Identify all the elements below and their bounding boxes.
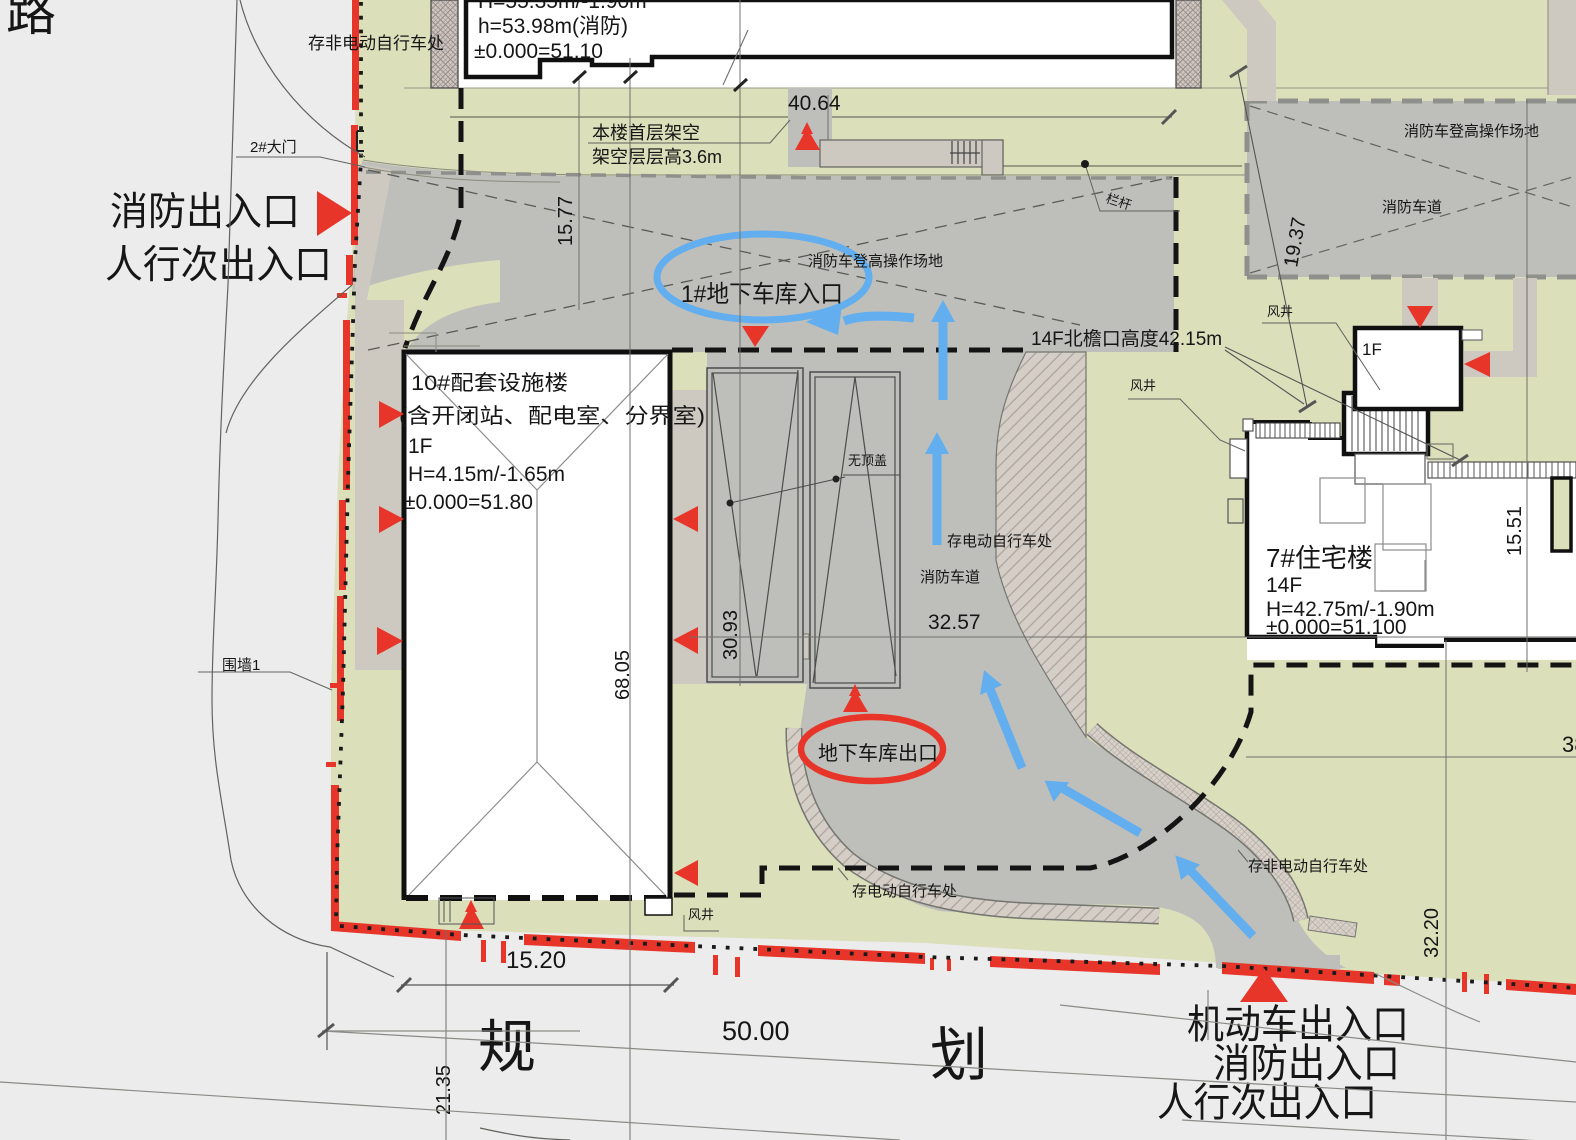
svg-text:消防出入口: 消防出入口 <box>1213 1042 1400 1086</box>
svg-text:消防车道: 消防车道 <box>1382 199 1442 216</box>
svg-text:架空层层高3.6m: 架空层层高3.6m <box>592 147 722 167</box>
svg-text:路: 路 <box>6 0 56 41</box>
svg-text:32.20: 32.20 <box>1421 908 1443 958</box>
svg-text:消防车登高操作场地: 消防车登高操作场地 <box>808 253 943 270</box>
svg-text:40.64: 40.64 <box>788 92 841 115</box>
svg-text:±0.000=51.10: ±0.000=51.10 <box>474 40 603 63</box>
svg-text:15.51: 15.51 <box>1504 506 1526 556</box>
svg-text:人行次出入口: 人行次出入口 <box>1157 1081 1377 1125</box>
svg-text:消防出入口: 消防出入口 <box>110 191 300 234</box>
svg-text:人行次出入口: 人行次出入口 <box>105 244 332 287</box>
svg-text:14F: 14F <box>1266 574 1302 597</box>
svg-text:规: 规 <box>478 1015 536 1080</box>
svg-text:h=53.98m(消防): h=53.98m(消防) <box>478 15 628 38</box>
svg-text:(含开闭站、配电室、分界室): (含开闭站、配电室、分界室) <box>399 405 705 428</box>
svg-text:7#住宅楼: 7#住宅楼 <box>1266 543 1373 573</box>
svg-text:1F: 1F <box>1362 340 1382 359</box>
svg-text:50.00: 50.00 <box>722 1016 790 1046</box>
svg-text:围墙1: 围墙1 <box>222 657 260 674</box>
svg-text:存电动自行车处: 存电动自行车处 <box>852 883 957 900</box>
svg-text:划: 划 <box>930 1023 988 1088</box>
svg-text:本楼首层架空: 本楼首层架空 <box>592 123 700 143</box>
svg-text:1F: 1F <box>408 435 433 458</box>
svg-text:38: 38 <box>1562 732 1576 757</box>
svg-text:±0.000=51.80: ±0.000=51.80 <box>404 491 533 514</box>
svg-text:15.20: 15.20 <box>506 947 566 974</box>
svg-text:30.93: 30.93 <box>720 610 742 660</box>
svg-text:风井: 风井 <box>688 907 714 922</box>
svg-text:15.77: 15.77 <box>555 196 577 246</box>
svg-text:1#地下车库入口: 1#地下车库入口 <box>681 281 843 308</box>
svg-text:风井: 风井 <box>1130 378 1156 393</box>
svg-text:地下车库出口: 地下车库出口 <box>818 742 938 765</box>
svg-text:H=4.15m/-1.65m: H=4.15m/-1.65m <box>408 463 565 486</box>
svg-text:32.57: 32.57 <box>928 611 981 634</box>
svg-text:21.35: 21.35 <box>433 1065 455 1115</box>
svg-text:存非电动自行车处: 存非电动自行车处 <box>1248 858 1368 875</box>
svg-text:±0.000=51.100: ±0.000=51.100 <box>1266 616 1407 639</box>
svg-text:14F北檐口高度42.15m: 14F北檐口高度42.15m <box>1031 328 1222 350</box>
svg-text:存非电动自行车处: 存非电动自行车处 <box>308 34 444 53</box>
svg-text:10#配套设施楼: 10#配套设施楼 <box>411 372 568 395</box>
svg-text:无顶盖: 无顶盖 <box>848 453 887 468</box>
svg-text:H=55.35m/-1.90m: H=55.35m/-1.90m <box>478 0 647 13</box>
svg-text:2#大门: 2#大门 <box>250 139 297 156</box>
svg-text:存电动自行车处: 存电动自行车处 <box>947 533 1052 550</box>
svg-text:消防车道: 消防车道 <box>920 569 980 586</box>
svg-text:风井: 风井 <box>1267 304 1293 319</box>
svg-text:68.05: 68.05 <box>612 650 634 700</box>
svg-text:消防车登高操作场地: 消防车登高操作场地 <box>1404 123 1539 140</box>
